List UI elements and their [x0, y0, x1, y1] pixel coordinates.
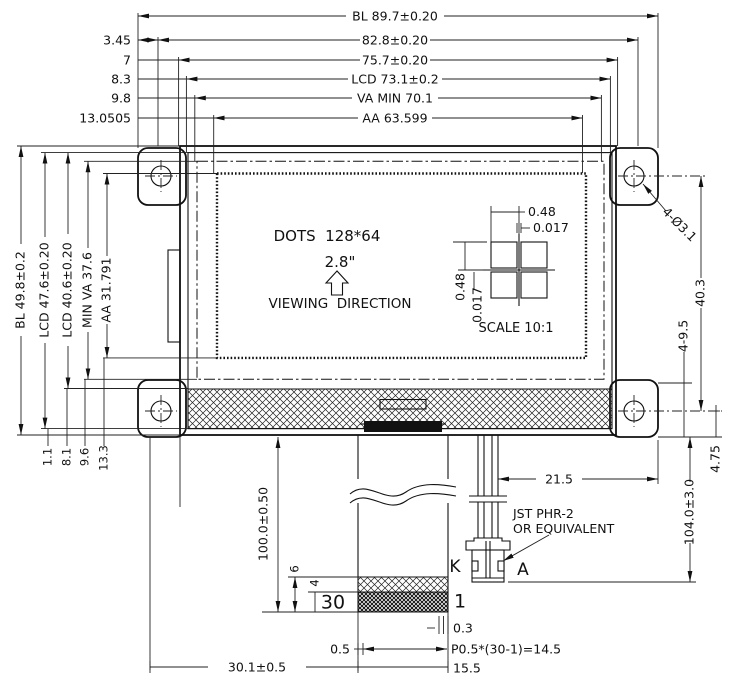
- jst-connector: JST PHR-2 OR EQUIVALENT K A: [449, 506, 614, 582]
- dim-offset-7: 7: [123, 53, 131, 68]
- dim-offset-98: 9.8: [111, 91, 131, 106]
- dim-overall-length: 104.0±3.0: [682, 479, 697, 545]
- fpc-solder-bar: [364, 421, 442, 432]
- connector-type-line1: JST PHR-2: [512, 506, 574, 521]
- dim-offset-81: 8.1: [60, 448, 74, 466]
- dim-hole-callout: 4-Ø3.1: [659, 204, 699, 244]
- cathode-label: K: [449, 557, 461, 577]
- dim-contact-width: 0.3: [453, 621, 473, 636]
- dim-top-757: 75.7±0.20: [362, 53, 428, 68]
- dim-offset-345: 3.45: [103, 33, 131, 48]
- left-edge-tab: [168, 250, 180, 342]
- dim-band-4: 4: [308, 579, 322, 586]
- dim-tail-width: 15.5: [453, 661, 481, 676]
- pin-1-label: 1: [454, 591, 466, 613]
- dim-offset-11: 1.1: [41, 448, 55, 466]
- dim-left-lcd-window: LCD 40.6±0.20: [60, 242, 75, 337]
- pixel-pitch-x-label: 0.48: [528, 204, 556, 219]
- dim-top-828: 82.8±0.20: [362, 33, 428, 48]
- fpc-contact-band-upper: [358, 577, 448, 592]
- dim-left-lcd-height: LCD 47.6±0.20: [37, 242, 52, 337]
- dim-left-aa-height: AA 31.791: [99, 257, 114, 322]
- module-outline: [138, 146, 658, 437]
- detail-scale-label: SCALE 10:1: [478, 321, 553, 336]
- pixel-pitch-y-label: 0.48: [453, 273, 468, 301]
- pin-30-label: 30: [321, 592, 345, 614]
- dim-top-lcd-width: LCD 73.1±0.2: [351, 72, 438, 87]
- technical-drawing: DOTS 128*64 2.8" VIEWING DIRECTION: [0, 0, 750, 700]
- dim-contact-margin: 0.5: [330, 642, 350, 657]
- dim-offset-133: 13.3: [97, 445, 111, 471]
- dim-top-va-width: VA MIN 70.1: [357, 91, 433, 106]
- dim-left-va-height: MIN VA 37.6: [80, 252, 95, 328]
- backlight-wires: [469, 435, 507, 543]
- anode-label: A: [517, 560, 529, 580]
- dim-offset-130505: 13.0505: [79, 111, 131, 126]
- pixel-gap-x-label: 0.017: [533, 220, 569, 235]
- dim-edge-475: 4.75: [708, 445, 723, 473]
- dim-fpc-length: 100.0±0.50: [256, 487, 271, 561]
- dim-wire-offset: 21.5: [545, 472, 573, 487]
- pixel-gap-y-label: 0.017: [470, 287, 485, 323]
- dim-band-6: 6: [288, 565, 302, 572]
- dim-top-aa-width: AA 63.599: [362, 111, 427, 126]
- dim-offset-96: 9.6: [78, 448, 92, 466]
- display-dots-label: DOTS 128*64: [274, 227, 381, 245]
- connector-type-line2: OR EQUIVALENT: [513, 521, 615, 536]
- dim-top-bl-width: BL 89.7±0.20: [352, 9, 438, 24]
- mounting-ear-top-right: [610, 148, 658, 205]
- dim-offset-83: 8.3: [111, 72, 131, 87]
- viewing-direction-label: VIEWING DIRECTION: [269, 296, 412, 312]
- mounting-ear-top-left: [138, 148, 186, 205]
- dim-hole-spacing: 40.3: [693, 279, 708, 307]
- dim-left-bl-height: BL 49.8±0.2: [13, 251, 28, 329]
- dim-tail-position: 30.1±0.5: [228, 660, 286, 675]
- fpc-contact-band-lower: [358, 592, 448, 612]
- dim-contact-pitch: P0.5*(30-1)=14.5: [451, 642, 561, 657]
- display-size-label: 2.8": [325, 253, 356, 271]
- fpc-ribbon: 30 1: [321, 435, 466, 614]
- dim-tab-height: 4-9.5: [676, 320, 691, 352]
